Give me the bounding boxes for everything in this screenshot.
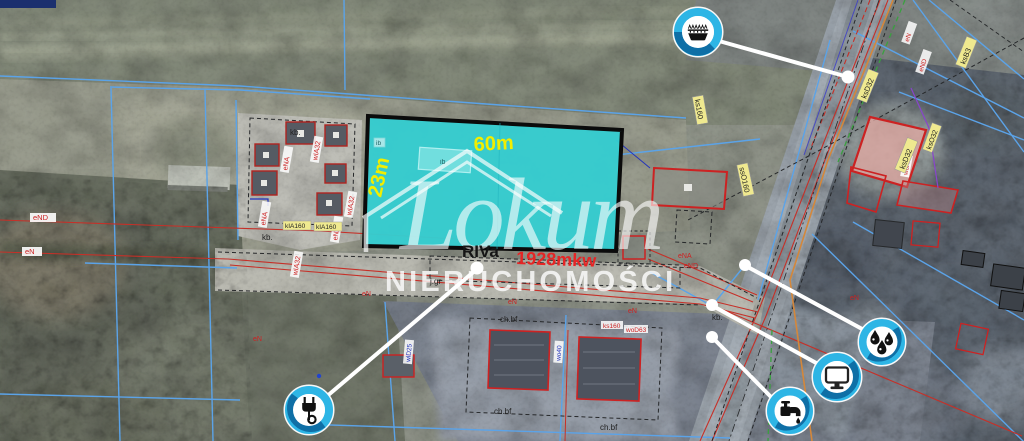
- svg-text:woD63: woD63: [625, 327, 647, 334]
- svg-text:NIERUCHOMOŚCI: NIERUCHOMOŚCI: [385, 264, 676, 298]
- svg-text:eNA: eNA: [678, 253, 692, 260]
- svg-text:ib: ib: [376, 140, 381, 147]
- svg-text:eN: eN: [508, 299, 517, 306]
- svg-text:eN: eN: [253, 336, 262, 343]
- svg-text:eND: eND: [33, 213, 49, 222]
- svg-text:eND: eND: [684, 263, 698, 270]
- svg-text:kIA160: kIA160: [316, 224, 337, 231]
- svg-text:eN: eN: [628, 308, 637, 315]
- svg-text:kb.: kb.: [262, 233, 273, 242]
- svg-text:eN: eN: [850, 295, 859, 302]
- svg-text:ch.bf: ch.bf: [600, 423, 618, 432]
- svg-text:kb.: kb.: [290, 128, 301, 137]
- svg-text:RIVa: RIVa: [462, 242, 499, 261]
- svg-text:eN: eN: [25, 247, 35, 256]
- svg-text:kIA160: kIA160: [285, 223, 306, 230]
- svg-text:kb.: kb.: [712, 313, 723, 322]
- svg-text:eN: eN: [362, 291, 371, 298]
- svg-text:wo40: wo40: [555, 345, 563, 362]
- svg-text:ib: ib: [440, 159, 446, 166]
- svg-text:ks160: ks160: [603, 323, 621, 330]
- svg-text:1928mkw: 1928mkw: [516, 248, 598, 271]
- svg-text:ch.bf: ch.bf: [494, 407, 512, 416]
- svg-text:ch.bf: ch.bf: [500, 315, 518, 324]
- svg-text:60m: 60m: [473, 132, 514, 156]
- svg-text:j.gr: j.gr: [429, 277, 441, 286]
